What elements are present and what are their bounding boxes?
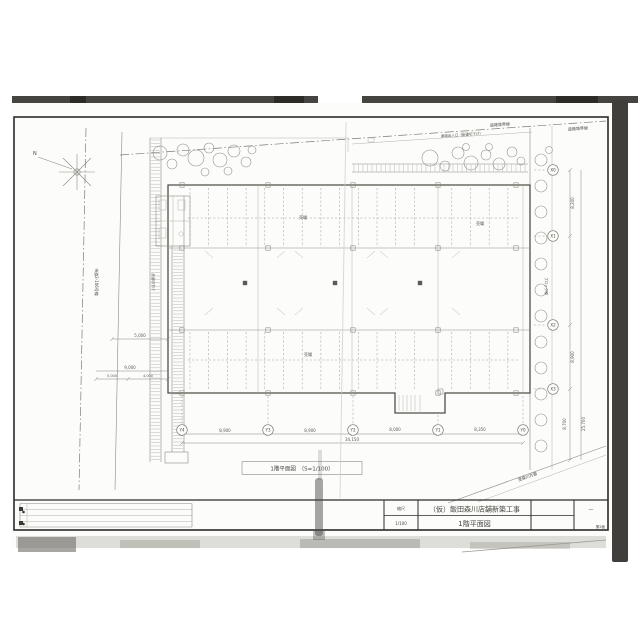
left-edge-mark-1 xyxy=(19,507,23,511)
revision-mark-1 xyxy=(22,511,25,514)
paper-sheet xyxy=(11,103,611,549)
drawing-name: 1階平面図 xyxy=(458,519,490,528)
bottom-smudge-2 xyxy=(120,540,200,548)
dim-bottom-2: 8,000 xyxy=(389,427,401,432)
dim-right-2: 8,700 xyxy=(562,418,567,430)
edge-blob-1 xyxy=(70,96,86,103)
edge-blob-3 xyxy=(556,96,598,103)
bottom-smudge-1 xyxy=(18,537,76,552)
dim-right-0: 8,200 xyxy=(570,197,575,209)
floor-plan-scan: 市道2-106号線 歩道切下げ 道路境界線 車両出入口（歩道切下げ） 道路境界線 xyxy=(0,0,640,640)
room-label-3: 売場 xyxy=(304,351,312,357)
x-grid-bubble-label-1: X1 xyxy=(550,234,556,239)
dim-left-2: 5,000 xyxy=(107,374,117,378)
dim-bottom-3: 8,350 xyxy=(474,427,486,432)
dim-bottom-total: 34,150 xyxy=(345,437,359,442)
bottom-smudge-4 xyxy=(470,542,570,549)
scale-label: 縮尺 xyxy=(397,505,405,511)
fold-smudge-2 xyxy=(318,450,322,480)
sheet-dash: — xyxy=(589,507,594,513)
bottom-smudge-3 xyxy=(300,539,420,548)
sheet-right-edge xyxy=(612,100,628,562)
left-road-label: 市道2-106号線 xyxy=(94,268,100,296)
y-grid-bubble-label-2: Y2 xyxy=(350,428,356,433)
y-grid-bubble-label-1: Y3 xyxy=(265,428,271,433)
dim-bottom-0: 8,900 xyxy=(219,428,231,433)
sheet-top-edge xyxy=(12,96,318,103)
x-grid-bubble-label-3: X3 xyxy=(550,387,556,392)
project-name: （仮）飯田森川店舗新築工事 xyxy=(429,505,520,514)
room-label-1: 売場 xyxy=(299,214,307,220)
dim-left-3: 4,000 xyxy=(143,374,153,378)
edge-blob-2 xyxy=(274,96,304,103)
north-label: N xyxy=(33,151,37,157)
scanned-drawing-sheet: 市道2-106号線 歩道切下げ 道路境界線 車両出入口（歩道切下げ） 道路境界線 xyxy=(0,0,640,640)
dim-bottom-1: 8,900 xyxy=(304,428,316,433)
dim-left-1: 9,000 xyxy=(124,365,136,370)
fold-smudge-3 xyxy=(313,530,325,540)
x-grid-bubble-label-0: X0 xyxy=(550,168,556,173)
dim-right-1: 8,900 xyxy=(570,351,575,363)
sheet-number: 第2面 xyxy=(596,524,606,529)
plan-caption-text: 1階平面図 （S=1/100） xyxy=(270,465,333,473)
scale-value: 1/100 xyxy=(395,521,407,526)
x-grid-bubble-label-2: X2 xyxy=(550,323,556,328)
y-grid-bubble-label-4: Y0 xyxy=(520,428,526,433)
left-edge-mark-2 xyxy=(19,521,23,525)
block-wall-label: ブロック塀 xyxy=(544,277,549,295)
y-grid-bubble-label-3: Y1 xyxy=(435,428,441,433)
fold-smudge xyxy=(315,478,323,536)
dim-right-total: 25,700 xyxy=(581,417,586,431)
room-label-2: 売場 xyxy=(476,220,484,226)
dim-left-0: 5,000 xyxy=(134,333,146,338)
y-grid-bubble-label-0: Y4 xyxy=(179,428,185,433)
